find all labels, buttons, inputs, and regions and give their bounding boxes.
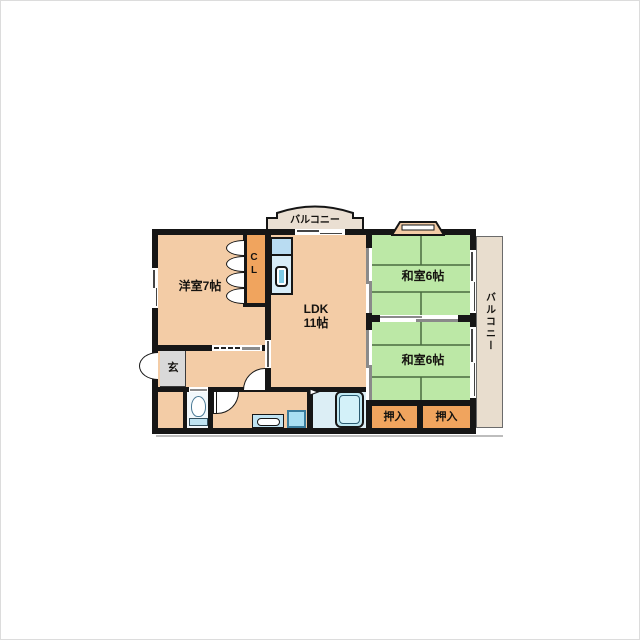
bay-window: [391, 221, 445, 236]
entrance-genkan-label: 玄: [161, 362, 185, 375]
tatami-line: [420, 322, 422, 345]
plan-shadow: [156, 435, 503, 437]
window-ldk-balcony: [295, 229, 345, 235]
room-ldk-size: 11帖: [286, 317, 346, 331]
room-japanese-bottom-label: 和室6帖: [389, 354, 457, 368]
sliding-door-toilet: [189, 387, 208, 392]
room-japanese-top-label: 和室6帖: [389, 270, 457, 284]
window-japanese-top-balcony: [470, 250, 476, 313]
tatami-line: [420, 235, 422, 265]
oshiire-left-label: 押入: [372, 411, 417, 424]
washbasin-fixture: [252, 414, 284, 428]
sliding-door-ldk-japanese-top: [366, 248, 372, 313]
toilet-fixture: [191, 396, 206, 417]
washing-machine-pan: [287, 410, 306, 428]
wall-toilet-left: [183, 392, 187, 428]
bathtub-fixture: [335, 391, 364, 428]
sliding-door-western-hall: [212, 345, 262, 351]
balcony-top-label: バルコニー: [265, 215, 365, 227]
room-ldk-name: LDK: [286, 303, 346, 317]
balcony-right-label: バルコニー: [483, 292, 495, 352]
closet-letter-l: L: [247, 265, 261, 278]
oshiire-right-label: 押入: [423, 411, 470, 424]
closet-letter-c: C: [247, 252, 261, 265]
window-japanese-bottom-balcony: [470, 327, 476, 398]
corridor-bottom: [158, 392, 183, 428]
sliding-door-ldk-japanese-bottom: [366, 330, 372, 400]
wall-bottom: [152, 428, 476, 434]
kitchen-sink-fixture: [275, 266, 288, 287]
tatami-line: [420, 292, 422, 315]
toilet-tank: [189, 418, 208, 426]
entrance-door-arc: [139, 352, 158, 380]
closet-cl-label: C L: [247, 252, 261, 277]
room-ldk-label: LDK 11帖: [286, 303, 346, 331]
window-western-left: [152, 268, 158, 308]
floor-plan: バルコニー バルコニー: [0, 0, 640, 640]
wall-left: [152, 229, 158, 434]
opening-hall-ldk: [265, 340, 271, 368]
room-western-label: 洋室7帖: [168, 280, 232, 294]
sliding-door-japanese-divider: [380, 315, 458, 322]
folding-door-icon: [308, 388, 320, 399]
tatami-line: [420, 377, 422, 400]
